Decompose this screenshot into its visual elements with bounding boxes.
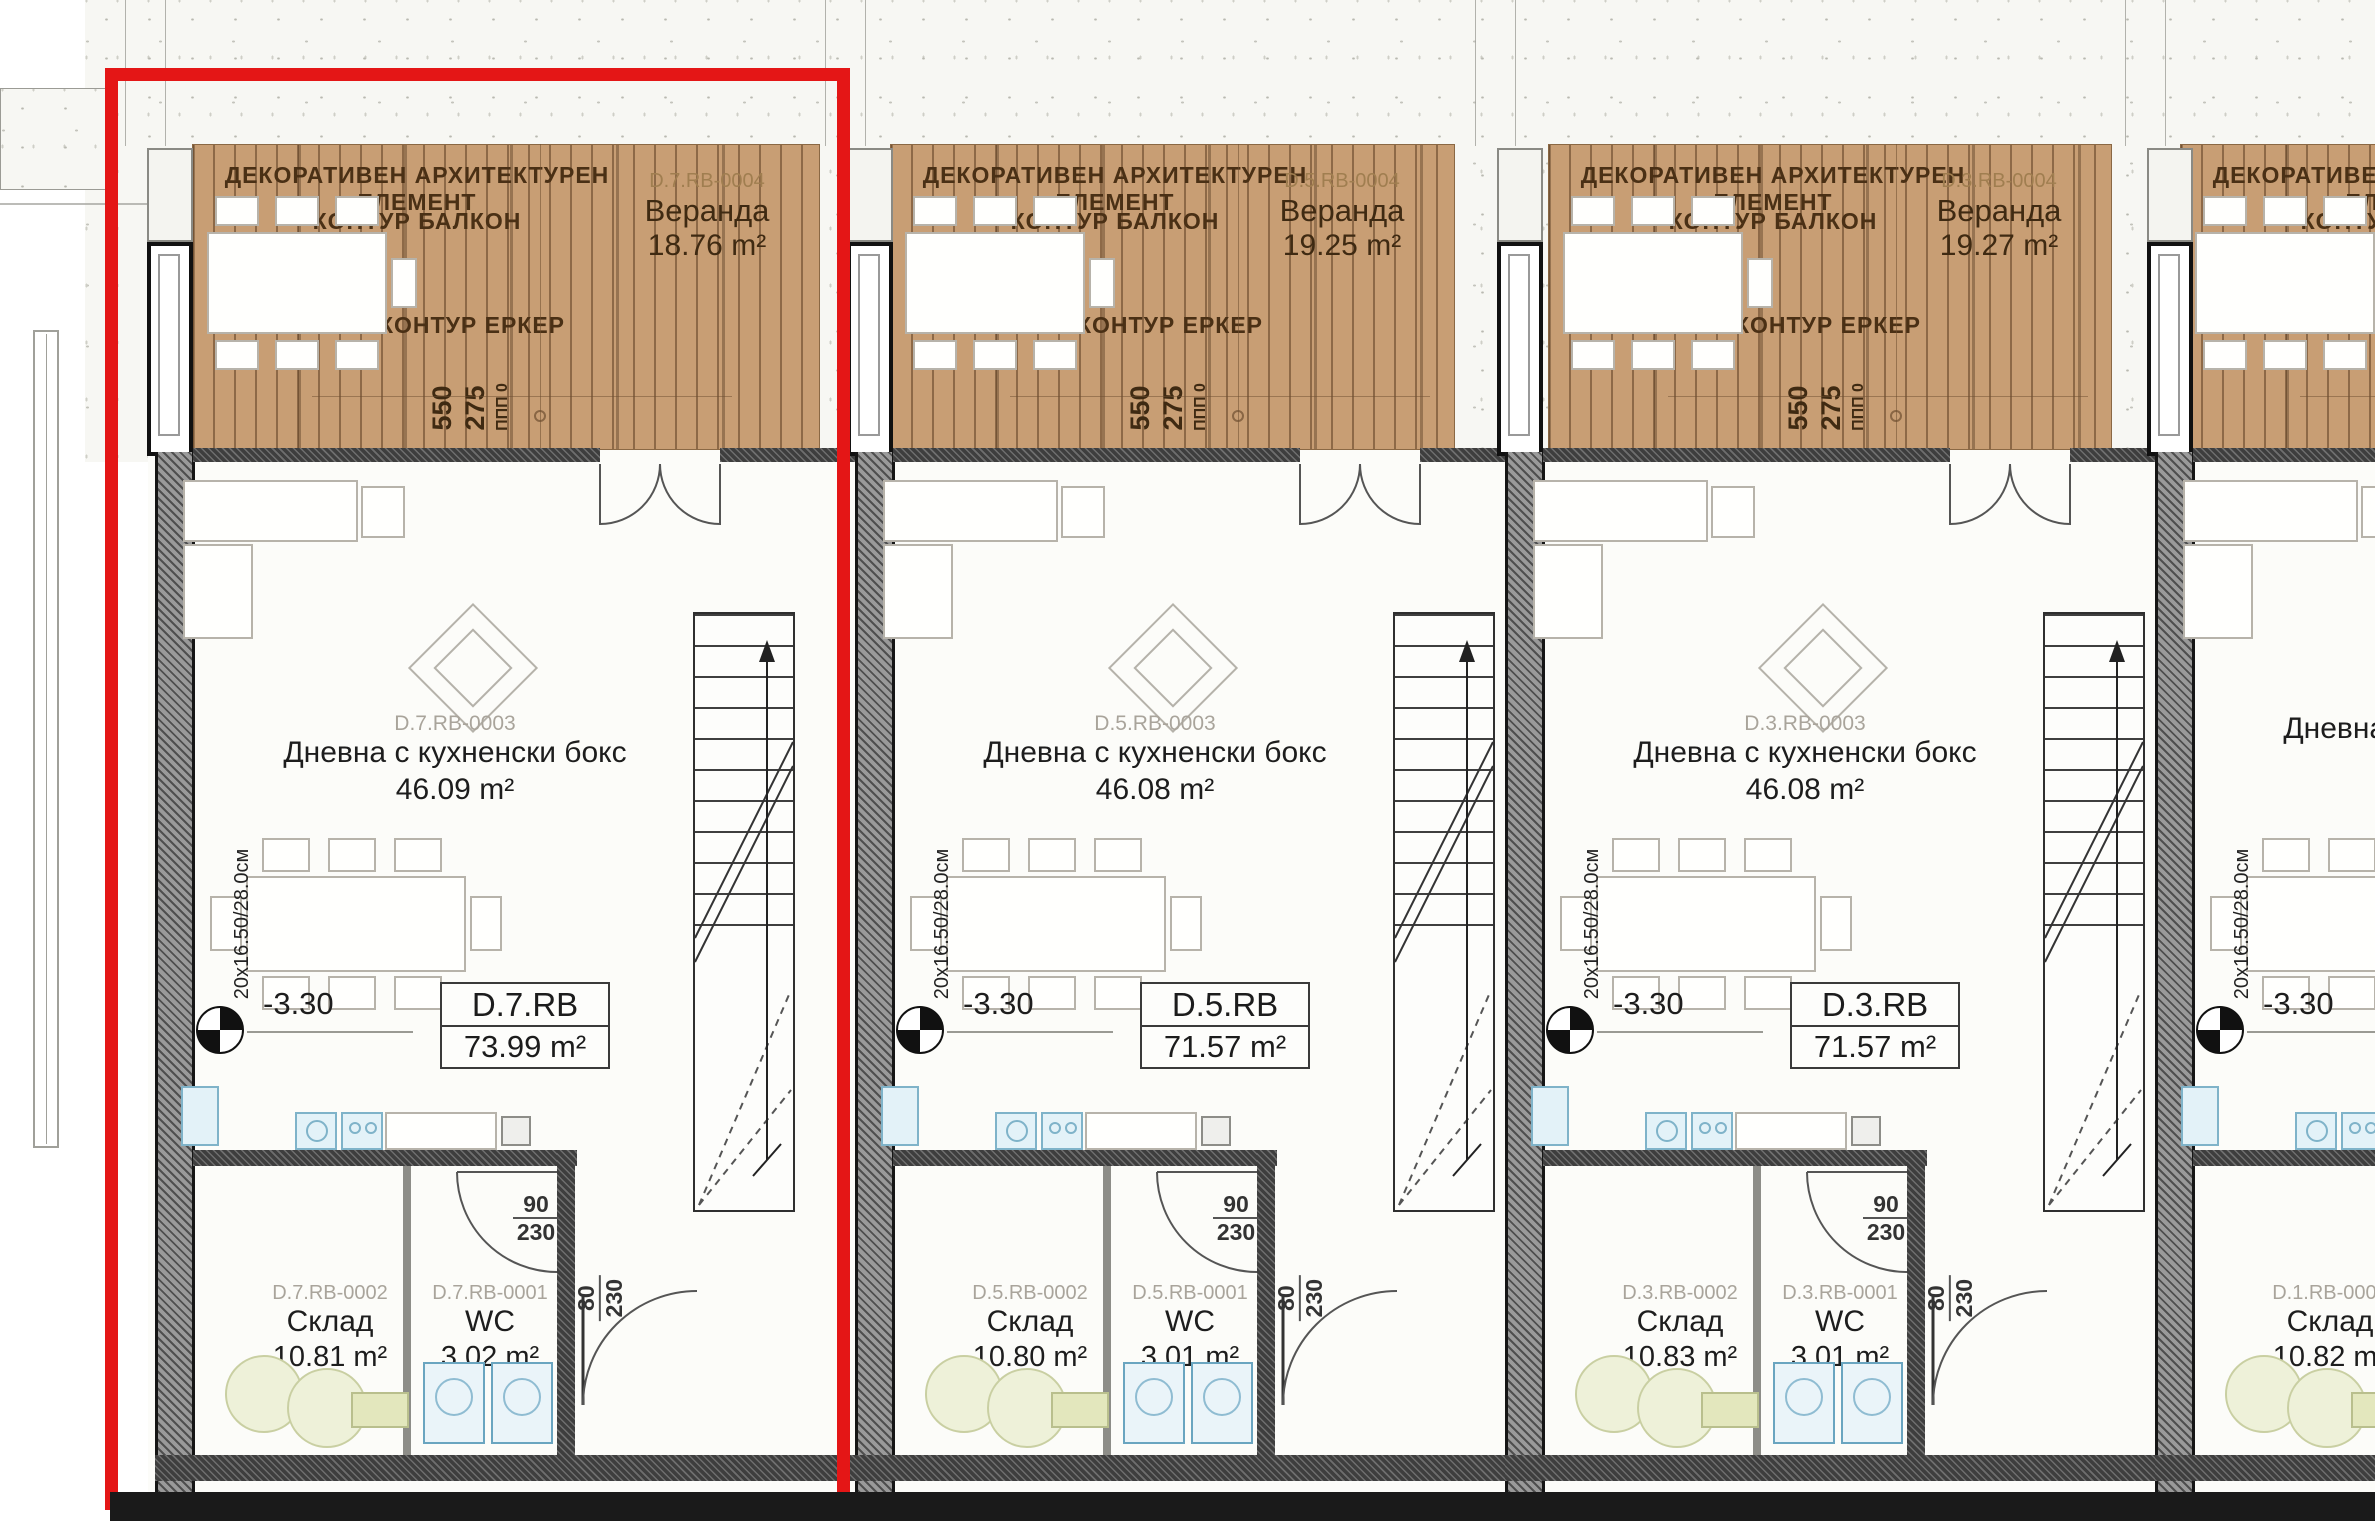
washing-machine-drum bbox=[1853, 1378, 1891, 1416]
bottom-wall bbox=[1505, 1455, 2195, 1481]
counter bbox=[1735, 1112, 1847, 1150]
door-height: 230 bbox=[1952, 1279, 1976, 1317]
veranda-dim-line bbox=[1238, 144, 1239, 450]
door-width: 80 bbox=[1924, 1285, 1948, 1311]
storage-name: Склад bbox=[2215, 1305, 2375, 1339]
chair bbox=[913, 340, 957, 370]
chair bbox=[1612, 838, 1660, 872]
balkon-contour-line bbox=[1668, 396, 2088, 397]
sofa bbox=[2183, 544, 2253, 639]
chair bbox=[962, 838, 1010, 872]
storage-box bbox=[1701, 1392, 1759, 1428]
unit-code: D.5.RB bbox=[1142, 984, 1308, 1025]
burner bbox=[1699, 1122, 1711, 1134]
wc-id: D.3.RB-0001 bbox=[1757, 1282, 1923, 1305]
window-sash bbox=[1508, 254, 1530, 436]
unit-plan: ДЕКОРАТИВЕН АРХИТЕКТУРЕН ЕЛЕМЕНТ КОНТУР … bbox=[2155, 0, 2375, 1521]
counter-sink bbox=[1851, 1116, 1881, 1146]
sofa bbox=[1533, 480, 1708, 542]
top-wall bbox=[1543, 448, 1950, 462]
bottom-wall bbox=[855, 1455, 1545, 1481]
unit-code: D.3.RB bbox=[1792, 984, 1958, 1025]
grid-line bbox=[2165, 0, 2166, 146]
wc-name: WC bbox=[1107, 1305, 1273, 1339]
chair bbox=[1820, 896, 1852, 951]
unit-code-box: D.5.RB 71.57 m² bbox=[1140, 982, 1310, 1069]
chair bbox=[2262, 838, 2310, 872]
door-size-wc: 80 230 bbox=[1274, 1265, 1326, 1331]
dim-ppp: ППП 0 bbox=[1850, 372, 1868, 442]
cooktop bbox=[1691, 1112, 1733, 1150]
chair bbox=[1028, 838, 1076, 872]
window-lower bbox=[1497, 242, 1543, 456]
window-upper bbox=[1497, 148, 1543, 242]
unit-plan: ДЕКОРАТИВЕН АРХИТЕКТУРЕН ЕЛЕМЕНТ КОНТУР … bbox=[1505, 0, 2155, 1521]
living-room-id: D.3.RB-0003 bbox=[1595, 712, 2015, 736]
window-sash bbox=[2158, 254, 2180, 436]
living-room-name: Дневна с кухненски бокс bbox=[1595, 736, 2015, 770]
veranda-id: D.5.RB-0004 bbox=[1247, 170, 1437, 193]
storage-box bbox=[1051, 1392, 1109, 1428]
veranda-name: Веранда bbox=[1904, 193, 2094, 229]
sofa bbox=[2183, 480, 2358, 542]
sofa bbox=[1533, 544, 1603, 639]
living-room-area: 46.08 m² bbox=[1595, 773, 2015, 807]
highlight-box bbox=[105, 68, 850, 1510]
veranda: ДЕКОРАТИВЕН АРХИТЕКТУРЕН ЕЛЕМЕНТ КОНТУР … bbox=[1548, 144, 2112, 450]
chair bbox=[1033, 196, 1077, 226]
door-size-wc: 80 230 bbox=[1924, 1265, 1976, 1331]
fridge bbox=[881, 1086, 919, 1146]
unit-total-area: 71.57 m² bbox=[1792, 1025, 1958, 1067]
table bbox=[2195, 232, 2375, 334]
dim-550: 550 bbox=[1783, 373, 1807, 443]
washing-machine-drum bbox=[1785, 1378, 1823, 1416]
chair bbox=[1691, 196, 1735, 226]
veranda-id: D.3.RB-0004 bbox=[1904, 170, 2094, 193]
window-sash bbox=[858, 254, 880, 436]
kitchen-sink bbox=[2295, 1112, 2337, 1150]
grid-line bbox=[2125, 0, 2126, 146]
burner bbox=[2365, 1122, 2375, 1134]
grid-line bbox=[1515, 0, 1516, 146]
chair bbox=[913, 196, 957, 226]
window-lower bbox=[847, 242, 893, 456]
table bbox=[946, 876, 1166, 972]
washing-machine-drum bbox=[1135, 1378, 1173, 1416]
staircase bbox=[2043, 612, 2145, 1212]
door-height: 230 bbox=[1867, 1220, 1905, 1244]
door-size-main: 90 230 bbox=[1203, 1192, 1269, 1244]
sink-bowl bbox=[1656, 1120, 1678, 1142]
decor-diamond-inner bbox=[1783, 628, 1862, 707]
storage-box bbox=[2351, 1392, 2375, 1428]
veranda-table-group bbox=[2195, 196, 2375, 368]
chair bbox=[973, 340, 1017, 370]
veranda-dim-line bbox=[1896, 144, 1897, 450]
bottom-wall bbox=[2155, 1455, 2375, 1481]
door-width: 90 bbox=[1873, 1192, 1899, 1216]
living-room-label: Дневна с кухненски бокс bbox=[2245, 712, 2375, 749]
chair bbox=[973, 196, 1017, 226]
sofa bbox=[883, 544, 953, 639]
washing-machine bbox=[1841, 1362, 1903, 1444]
chair bbox=[1571, 340, 1615, 370]
wc-name: WC bbox=[1757, 1305, 1923, 1339]
grid-line bbox=[1475, 0, 1476, 146]
dim-275: 275 bbox=[1158, 373, 1182, 443]
wc-label: D.3.RB-0001 WC 3.01 m² bbox=[1757, 1282, 1923, 1374]
living-room-id: D.5.RB-0003 bbox=[945, 712, 1365, 736]
sofa bbox=[883, 480, 1058, 542]
burner bbox=[1065, 1122, 1077, 1134]
living-room-label: D.5.RB-0003 Дневна с кухненски бокс 46.0… bbox=[945, 712, 1365, 807]
balkon-contour-line bbox=[1010, 396, 1430, 397]
burner bbox=[2349, 1122, 2361, 1134]
interior-wall-h bbox=[2193, 1150, 2375, 1166]
table bbox=[1596, 876, 1816, 972]
chair bbox=[1170, 896, 1202, 951]
chair bbox=[1691, 340, 1735, 370]
chair bbox=[1571, 196, 1615, 226]
cooktop bbox=[1041, 1112, 1083, 1150]
door-width: 80 bbox=[1274, 1285, 1298, 1311]
kitchen-sink bbox=[995, 1112, 1037, 1150]
top-wall bbox=[893, 448, 1300, 462]
table bbox=[1563, 232, 1743, 334]
living-room-area: 46.08 m² bbox=[945, 773, 1365, 807]
floor-plan-canvas: ДЕКОРАТИВЕН АРХИТЕКТУРЕН ЕЛЕМЕНТ КОНТУР … bbox=[0, 0, 2375, 1521]
chair bbox=[1631, 196, 1675, 226]
chair bbox=[1094, 838, 1142, 872]
burner bbox=[1049, 1122, 1061, 1134]
veranda-dim-marker bbox=[1890, 410, 1902, 422]
level-value: -3.30 bbox=[963, 986, 1103, 1022]
living-room-name: Дневна с кухненски бокс bbox=[2245, 712, 2375, 746]
stair-treads bbox=[1395, 614, 1493, 944]
storage-id: D.1.RB-0002 bbox=[2215, 1282, 2375, 1305]
veranda-label-block: D.5.RB-0004 Веранда 19.25 m² bbox=[1247, 170, 1437, 263]
stairs-label: 20x16.50/28.0см bbox=[931, 774, 955, 1074]
counter-sink bbox=[1201, 1116, 1231, 1146]
window-upper bbox=[847, 148, 893, 242]
chair bbox=[1747, 258, 1773, 308]
chair bbox=[1678, 838, 1726, 872]
interior-wall-h bbox=[1543, 1150, 1927, 1166]
chair bbox=[2203, 196, 2247, 226]
veranda-table-group bbox=[1563, 196, 1775, 368]
washing-machine bbox=[1773, 1362, 1835, 1444]
table bbox=[905, 232, 1085, 334]
table bbox=[2246, 876, 2375, 972]
unit-code-box: D.3.RB 71.57 m² bbox=[1790, 982, 1960, 1069]
stairs-label: 20x16.50/28.0см bbox=[2231, 774, 2255, 1074]
burner bbox=[1715, 1122, 1727, 1134]
door-width: 90 bbox=[1223, 1192, 1249, 1216]
cooktop bbox=[2341, 1112, 2375, 1150]
chair bbox=[2203, 340, 2247, 370]
wc-id: D.5.RB-0001 bbox=[1107, 1282, 1273, 1305]
chair bbox=[2323, 340, 2367, 370]
chair bbox=[1033, 340, 1077, 370]
living-room-name: Дневна с кухненски бокс bbox=[945, 736, 1365, 770]
veranda-area: 19.27 m² bbox=[1904, 229, 2094, 263]
washing-machine bbox=[1123, 1362, 1185, 1444]
wc-label: D.5.RB-0001 WC 3.01 m² bbox=[1107, 1282, 1273, 1374]
kitchen-sink bbox=[1645, 1112, 1687, 1150]
counter bbox=[1085, 1112, 1197, 1150]
chair bbox=[1744, 838, 1792, 872]
veranda-label-block: D.3.RB-0004 Веранда 19.27 m² bbox=[1904, 170, 2094, 263]
side-table bbox=[1061, 486, 1105, 538]
level-value: -3.30 bbox=[2263, 986, 2375, 1022]
chair bbox=[2263, 196, 2307, 226]
section-base-bar bbox=[110, 1492, 2375, 1521]
storage-label: D.1.RB-0002 Склад 10.82 m² bbox=[2215, 1282, 2375, 1374]
chair bbox=[2328, 838, 2375, 872]
veranda-dim-marker bbox=[1232, 410, 1244, 422]
unit-total-area: 71.57 m² bbox=[1142, 1025, 1308, 1067]
dim-550: 550 bbox=[1125, 373, 1149, 443]
washing-machine-drum bbox=[1203, 1378, 1241, 1416]
sink-bowl bbox=[1006, 1120, 1028, 1142]
veranda: ДЕКОРАТИВЕН АРХИТЕКТУРЕН ЕЛЕМЕНТ КОНТУР … bbox=[2180, 144, 2375, 450]
chair bbox=[2323, 196, 2367, 226]
veranda-table-group bbox=[905, 196, 1117, 368]
veranda-area: 19.25 m² bbox=[1247, 229, 1437, 263]
chair bbox=[1089, 258, 1115, 308]
chair bbox=[2263, 340, 2307, 370]
staircase bbox=[1393, 612, 1495, 1212]
washing-machine bbox=[1191, 1362, 1253, 1444]
fridge bbox=[2181, 1086, 2219, 1146]
chair bbox=[1631, 340, 1675, 370]
fridge bbox=[1531, 1086, 1569, 1146]
door-height: 230 bbox=[1217, 1220, 1255, 1244]
stairs-label: 20x16.50/28.0см bbox=[1581, 774, 1605, 1074]
veranda: ДЕКОРАТИВЕН АРХИТЕКТУРЕН ЕЛЕМЕНТ КОНТУР … bbox=[890, 144, 1455, 450]
window-upper bbox=[2147, 148, 2193, 242]
door-size-main: 90 230 bbox=[1853, 1192, 1919, 1244]
dim-275: 275 bbox=[1816, 373, 1840, 443]
balkon-contour-line bbox=[2300, 396, 2375, 397]
dim-ppp: ППП 0 bbox=[1192, 372, 1210, 442]
interior-wall-h bbox=[893, 1150, 1277, 1166]
side-table bbox=[1711, 486, 1755, 538]
side-table bbox=[2361, 486, 2375, 538]
top-wall bbox=[2193, 448, 2375, 462]
sink-bowl bbox=[2306, 1120, 2328, 1142]
level-value: -3.30 bbox=[1613, 986, 1753, 1022]
living-room-label: D.3.RB-0003 Дневна с кухненски бокс 46.0… bbox=[1595, 712, 2015, 807]
stair-treads bbox=[2045, 614, 2143, 944]
door-height: 230 bbox=[1302, 1279, 1326, 1317]
unit-plan: ДЕКОРАТИВЕН АРХИТЕКТУРЕН ЕЛЕМЕНТ КОНТУР … bbox=[855, 0, 1505, 1521]
grid-line bbox=[865, 0, 866, 146]
decor-diamond-inner bbox=[1133, 628, 1212, 707]
window-lower bbox=[2147, 242, 2193, 456]
veranda-name: Веранда bbox=[1247, 193, 1437, 229]
